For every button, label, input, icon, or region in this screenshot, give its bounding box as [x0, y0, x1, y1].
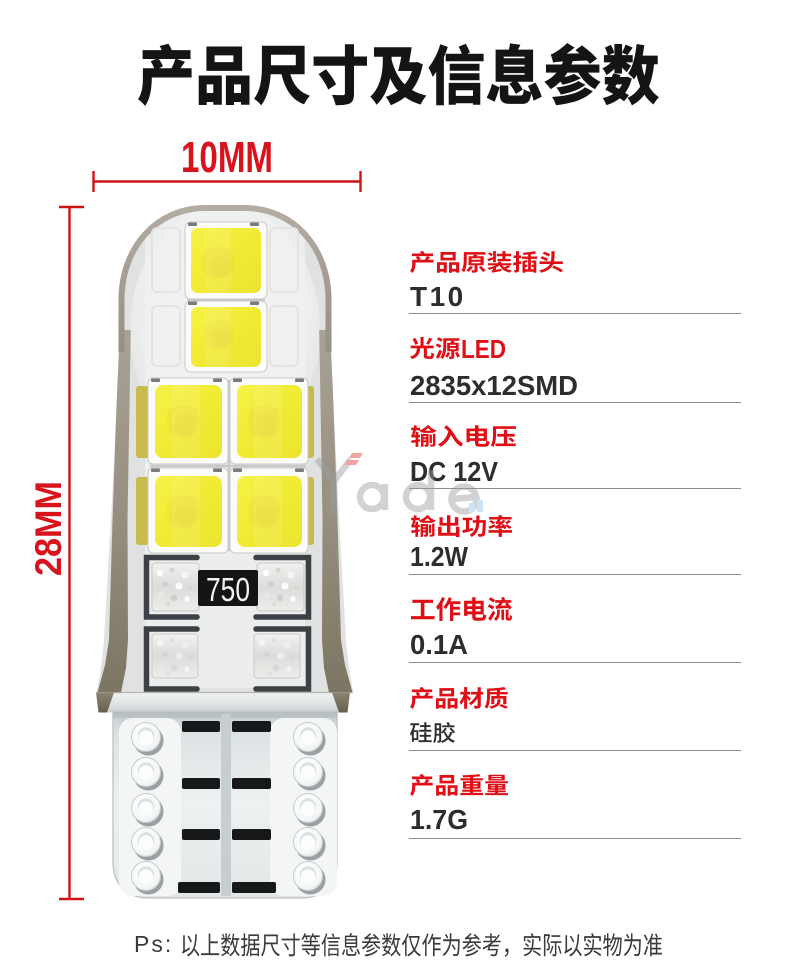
- svg-text:10MM: 10MM: [181, 133, 273, 182]
- svg-text:750: 750: [206, 571, 250, 608]
- svg-text:1.7G: 1.7G: [410, 804, 468, 835]
- svg-text:1.2W: 1.2W: [410, 541, 469, 572]
- svg-text:T10: T10: [410, 281, 466, 312]
- svg-text:2835x12SMD: 2835x12SMD: [410, 370, 578, 401]
- svg-text:DC 12V: DC 12V: [410, 456, 498, 487]
- svg-text:0.1A: 0.1A: [410, 629, 468, 660]
- svg-text:LED: LED: [461, 334, 506, 364]
- svg-text:Ps:: Ps:: [134, 931, 173, 957]
- svg-text:28MM: 28MM: [28, 481, 69, 576]
